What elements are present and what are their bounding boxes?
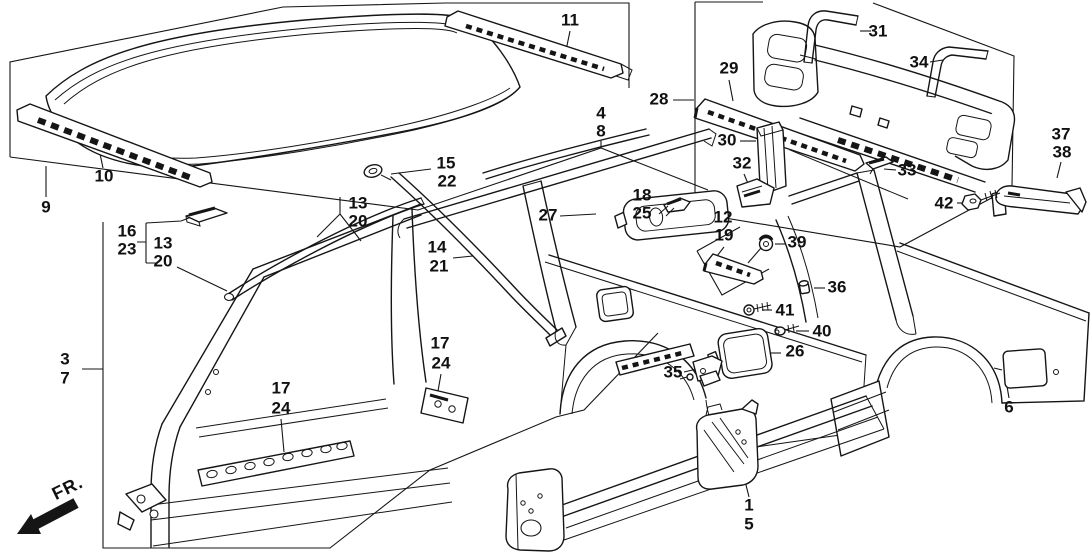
fuel-filler-adapter (613, 190, 730, 243)
part-label-14: 14 (428, 237, 447, 256)
part-label-17-a: 17 (272, 378, 291, 397)
rear-panel (753, 21, 1015, 199)
part-label-41: 41 (776, 300, 795, 319)
part-label-17-b: 17 (431, 333, 450, 352)
part-label-33: 33 (898, 160, 917, 179)
clip-33 (866, 157, 893, 174)
part-label-29: 29 (720, 58, 739, 77)
fr-direction-arrow: FR. (17, 472, 86, 534)
part-label-13-b: 13 (349, 193, 368, 212)
grommet-39 (760, 236, 773, 251)
part-label-40: 40 (813, 321, 832, 340)
part-label-26: 26 (786, 341, 805, 360)
part-label-20-b: 20 (349, 211, 368, 230)
part-label-12: 12 (714, 207, 733, 226)
part-label-22: 22 (438, 171, 457, 190)
part-label-19: 19 (715, 225, 734, 244)
part-label-21: 21 (430, 256, 449, 275)
part-label-24-b: 24 (432, 353, 451, 372)
part-label-9: 9 (41, 197, 50, 216)
bracket-34 (927, 47, 988, 97)
part-label-28: 28 (650, 89, 669, 108)
part-label-16: 16 (118, 221, 137, 240)
part-label-31: 31 (869, 21, 888, 40)
part-label-23: 23 (118, 239, 137, 258)
part-label-42: 42 (935, 193, 954, 212)
part-label-39: 39 (788, 232, 807, 251)
part-label-20-a: 20 (154, 251, 173, 270)
part-label-36: 36 (828, 277, 847, 296)
side-sill-panel (506, 396, 884, 551)
bolt-41 (744, 302, 771, 315)
part-label-10: 10 (95, 166, 114, 185)
part-label-32: 32 (733, 153, 752, 172)
part-label-6: 6 (1004, 397, 1013, 416)
rear-garnish-bracket-37-38 (992, 186, 1086, 216)
part-label-37: 37 (1052, 124, 1071, 143)
drip-molding-left (225, 198, 425, 301)
part-label-3: 3 (60, 349, 69, 368)
part-label-15: 15 (437, 153, 456, 172)
part-label-30: 30 (718, 130, 737, 149)
part-label-11: 11 (561, 10, 579, 29)
body-panel-exploded-diagram: FR. 910162313201320152214211148282931343… (0, 0, 1090, 554)
part-label-34: 34 (910, 52, 929, 71)
fr-direction-label: FR. (49, 472, 87, 504)
part-label-24-a: 24 (272, 398, 291, 417)
molding-retainer (363, 163, 391, 180)
part-label-5: 5 (744, 514, 753, 533)
part-label-18: 18 (633, 185, 652, 204)
part-label-1: 1 (744, 495, 753, 514)
parts-diagram-canvas: FR. 910162313201320152214211148282931343… (0, 0, 1090, 554)
part-label-13-a: 13 (154, 233, 173, 252)
rear-quarter-panel (776, 170, 1089, 456)
part-label-25: 25 (633, 203, 652, 222)
side-panel-rear-quarter (398, 129, 866, 450)
part-label-8: 8 (596, 121, 605, 140)
part-label-4: 4 (596, 103, 606, 122)
part-label-7: 7 (60, 368, 69, 387)
part-label-38: 38 (1053, 142, 1072, 161)
fr-arrow-icon (17, 498, 79, 534)
part-label-35: 35 (664, 362, 683, 381)
part-label-27: 27 (539, 205, 558, 224)
roof-molding-clip (186, 208, 227, 226)
